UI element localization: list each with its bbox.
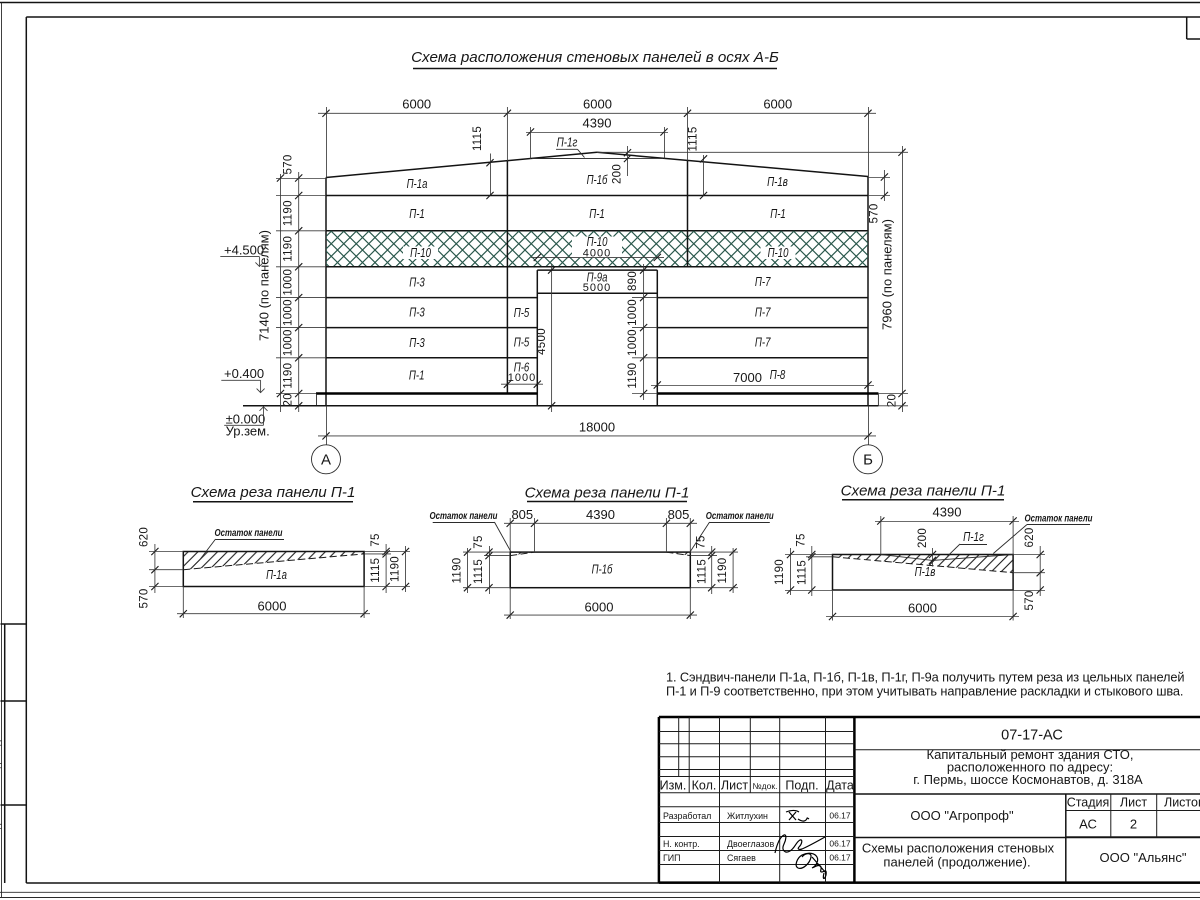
svg-text:6000: 6000 <box>585 600 614 615</box>
svg-text:П-3: П-3 <box>409 336 425 350</box>
svg-text:890: 890 <box>627 271 639 291</box>
svg-text:6000: 6000 <box>908 601 937 616</box>
svg-text:П-1б: П-1б <box>587 173 609 187</box>
svg-text:1190: 1190 <box>717 558 729 584</box>
svg-text:1000: 1000 <box>627 299 639 326</box>
svg-text:Б: Б <box>863 452 873 469</box>
svg-text:Остаток панели: Остаток панели <box>1025 513 1093 525</box>
svg-text:20: 20 <box>887 394 899 407</box>
svg-text:П-7: П-7 <box>755 336 771 350</box>
svg-text:П-1а: П-1а <box>407 177 428 191</box>
svg-text:620: 620 <box>1024 527 1036 547</box>
svg-text:П-7: П-7 <box>755 275 771 289</box>
svg-text:6000: 6000 <box>258 599 287 614</box>
svg-text:1115: 1115 <box>473 559 485 584</box>
svg-text:№док.: №док. <box>753 781 778 791</box>
svg-text:1115: 1115 <box>797 560 809 585</box>
svg-text:Н. контр.: Н. контр. <box>663 839 700 849</box>
svg-text:Кол.: Кол. <box>692 778 717 792</box>
svg-text:1190: 1190 <box>389 556 401 582</box>
svg-text:6000: 6000 <box>583 97 612 112</box>
svg-text:06.17: 06.17 <box>829 810 851 820</box>
svg-text:АС: АС <box>1079 817 1097 832</box>
svg-text:200: 200 <box>612 164 624 184</box>
svg-text:07-17-АС: 07-17-АС <box>1001 728 1063 744</box>
svg-text:1115: 1115 <box>472 126 484 151</box>
svg-text:г. Пермь, шоссе Космонавтов, д: г. Пермь, шоссе Космонавтов, д. 318А <box>913 772 1143 787</box>
svg-text:П-3: П-3 <box>409 306 425 320</box>
svg-text:805: 805 <box>668 507 690 522</box>
svg-text:620: 620 <box>139 527 151 547</box>
svg-text:+0.400: +0.400 <box>224 366 264 381</box>
svg-text:П-1а: П-1а <box>266 568 287 582</box>
svg-text:П-1в: П-1в <box>915 565 936 579</box>
svg-text:панелей (продолжение).: панелей (продолжение). <box>883 855 1030 870</box>
svg-text:75: 75 <box>696 535 708 548</box>
svg-text:Сягаев: Сягаев <box>727 853 756 863</box>
svg-text:Схема реза панели П-1: Схема реза панели П-1 <box>191 484 356 501</box>
svg-text:1190: 1190 <box>283 200 295 226</box>
svg-text:18000: 18000 <box>579 420 615 435</box>
svg-text:П-10: П-10 <box>768 246 789 260</box>
svg-text:Схема расположения стеновых па: Схема расположения стеновых панелей в ос… <box>411 49 779 66</box>
svg-text:06.17: 06.17 <box>829 853 851 863</box>
svg-text:1190: 1190 <box>283 363 295 389</box>
svg-text:1190: 1190 <box>627 363 639 389</box>
svg-text:Листов: Листов <box>1164 795 1200 809</box>
svg-text:П-1: П-1 <box>409 369 425 383</box>
svg-text:П-3: П-3 <box>409 276 425 290</box>
svg-text:Дата: Дата <box>826 778 854 792</box>
svg-text:4390: 4390 <box>586 507 615 522</box>
svg-text:1115: 1115 <box>370 558 382 583</box>
svg-text:1000: 1000 <box>627 329 639 356</box>
svg-text:П-5: П-5 <box>514 306 530 320</box>
svg-text:1000: 1000 <box>508 372 536 384</box>
svg-text:1. Сэндвич-панели П-1а, П-1б,: 1. Сэндвич-панели П-1а, П-1б, П-1в, П-1г… <box>666 670 1184 685</box>
svg-text:П-8: П-8 <box>770 368 786 382</box>
svg-text:+4.500: +4.500 <box>224 242 264 257</box>
svg-text:П-1: П-1 <box>589 207 605 221</box>
svg-text:Подп.: Подп. <box>785 778 818 792</box>
svg-text:2: 2 <box>1130 817 1137 832</box>
svg-text:Схема реза панели П-1: Схема реза панели П-1 <box>841 483 1006 500</box>
svg-text:Остаток панели: Остаток панели <box>706 510 774 522</box>
svg-text:6000: 6000 <box>763 97 792 112</box>
svg-text:06.17: 06.17 <box>829 839 851 849</box>
svg-text:75: 75 <box>370 533 382 546</box>
svg-text:75: 75 <box>796 533 808 546</box>
svg-text:1115: 1115 <box>697 559 709 584</box>
svg-text:6000: 6000 <box>402 97 431 112</box>
svg-text:4390: 4390 <box>933 505 962 520</box>
svg-text:П-1: П-1 <box>409 207 425 221</box>
svg-text:Остаток панели: Остаток панели <box>215 527 283 539</box>
svg-text:4500: 4500 <box>536 328 548 355</box>
svg-text:1000: 1000 <box>283 329 295 356</box>
svg-text:Разработал: Разработал <box>663 811 711 821</box>
svg-text:Лист: Лист <box>721 778 748 792</box>
svg-text:7000: 7000 <box>733 370 762 385</box>
svg-text:1190: 1190 <box>774 559 786 585</box>
svg-text:П-5: П-5 <box>514 336 530 350</box>
svg-text:570: 570 <box>283 154 295 174</box>
svg-text:П-10: П-10 <box>410 246 431 260</box>
svg-text:Изм.: Изм. <box>660 778 687 792</box>
svg-text:570: 570 <box>1024 590 1036 610</box>
svg-text:Схемы расположения стеновых: Схемы расположения стеновых <box>862 841 1055 856</box>
svg-text:А: А <box>321 452 331 469</box>
svg-text:805: 805 <box>511 507 533 522</box>
svg-text:1000: 1000 <box>283 269 295 296</box>
svg-text:ООО "Альянс": ООО "Альянс" <box>1100 850 1187 865</box>
svg-text:П-1в: П-1в <box>767 175 788 189</box>
svg-text:Житлухин: Житлухин <box>727 811 768 821</box>
svg-text:Стадия: Стадия <box>1067 795 1110 809</box>
svg-text:Взам. инв. №: Взам. инв. № <box>0 634 2 690</box>
svg-text:П-1 и П-9 соответственно, при: П-1 и П-9 соответственно, при этом учиты… <box>666 684 1183 699</box>
svg-text:4390: 4390 <box>583 116 612 131</box>
svg-text:П-1: П-1 <box>770 207 786 221</box>
svg-text:П-1г: П-1г <box>557 136 578 150</box>
svg-text:1190: 1190 <box>452 558 464 584</box>
svg-text:20: 20 <box>283 393 295 406</box>
svg-text:1115: 1115 <box>688 126 700 151</box>
svg-text:Остаток панели: Остаток панели <box>430 510 498 522</box>
svg-text:5000: 5000 <box>583 282 611 294</box>
svg-text:Инв. № подл.: Инв. № подл. <box>0 816 2 872</box>
svg-text:ООО "Агропроф": ООО "Агропроф" <box>910 808 1014 823</box>
svg-text:П-1б: П-1б <box>592 563 614 577</box>
svg-text:П-7: П-7 <box>755 306 771 320</box>
svg-text:Двоеглазов: Двоеглазов <box>727 839 774 849</box>
svg-text:570: 570 <box>139 588 151 608</box>
svg-text:Ур.зем.: Ур.зем. <box>226 423 270 438</box>
svg-text:75: 75 <box>473 535 485 548</box>
svg-text:7960 (по панелям): 7960 (по панелям) <box>880 219 895 330</box>
svg-text:200: 200 <box>917 528 929 548</box>
svg-text:1190: 1190 <box>283 236 295 262</box>
svg-text:Подп. и дата: Подп. и дата <box>0 726 2 779</box>
svg-text:Схема реза панели П-1: Схема реза панели П-1 <box>525 485 690 502</box>
svg-text:ГИП: ГИП <box>663 853 681 863</box>
svg-text:1000: 1000 <box>283 299 295 326</box>
svg-text:П-1г: П-1г <box>963 530 984 544</box>
svg-text:Лист: Лист <box>1120 795 1147 809</box>
